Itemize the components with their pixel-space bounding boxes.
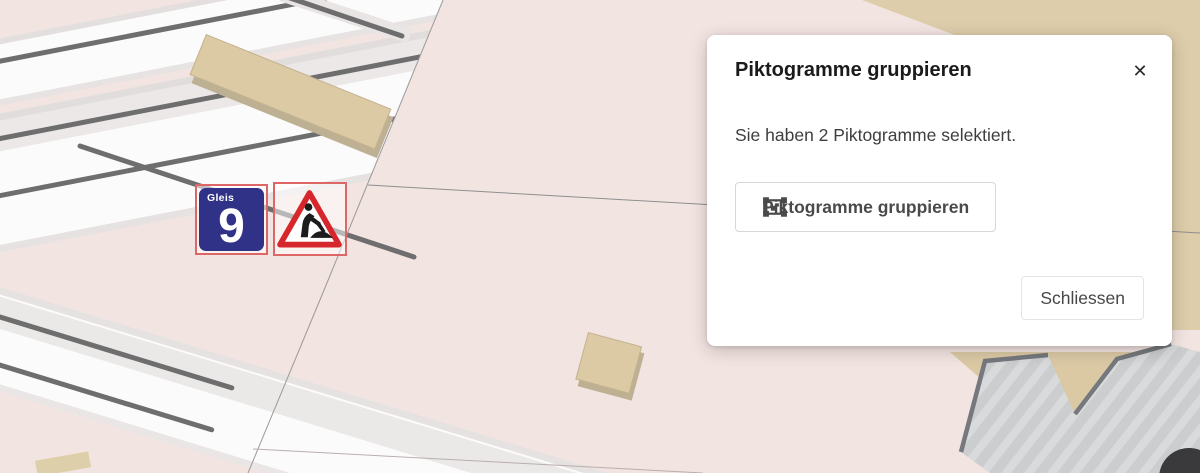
schliessen-button[interactable]: Schliessen [1021,276,1144,320]
building-area-bottom-right [950,352,1200,473]
stairs-structure [961,344,1200,473]
dialog-title: Piktogramme gruppieren [735,59,972,82]
group-pictograms-button-label: Piktogramme gruppieren [762,197,969,218]
round-structure [1159,448,1200,473]
building [35,451,91,473]
track-sign-number: 9 [199,204,264,250]
stairs-edge [1075,344,1171,414]
track-sign-panel: Gleis 9 [199,188,264,251]
pictogram-track-sign[interactable]: Gleis 9 [195,184,268,255]
pictogram-construction-sign[interactable] [273,182,347,256]
stairs-edge [961,355,1048,452]
close-icon[interactable]: ✕ [1124,55,1156,87]
map-canvas: Gleis 9 Piktogramme gruppieren ✕ Sie hab… [0,0,1200,473]
construction-worker-icon [276,185,343,252]
group-pictograms-dialog: Piktogramme gruppieren ✕ Sie haben 2 Pik… [707,35,1172,346]
dialog-message: Sie haben 2 Piktogramme selektiert. [735,125,1016,146]
object-group-icon [762,194,788,220]
group-pictograms-button[interactable]: Piktogramme gruppieren [735,182,996,232]
building [575,332,642,394]
